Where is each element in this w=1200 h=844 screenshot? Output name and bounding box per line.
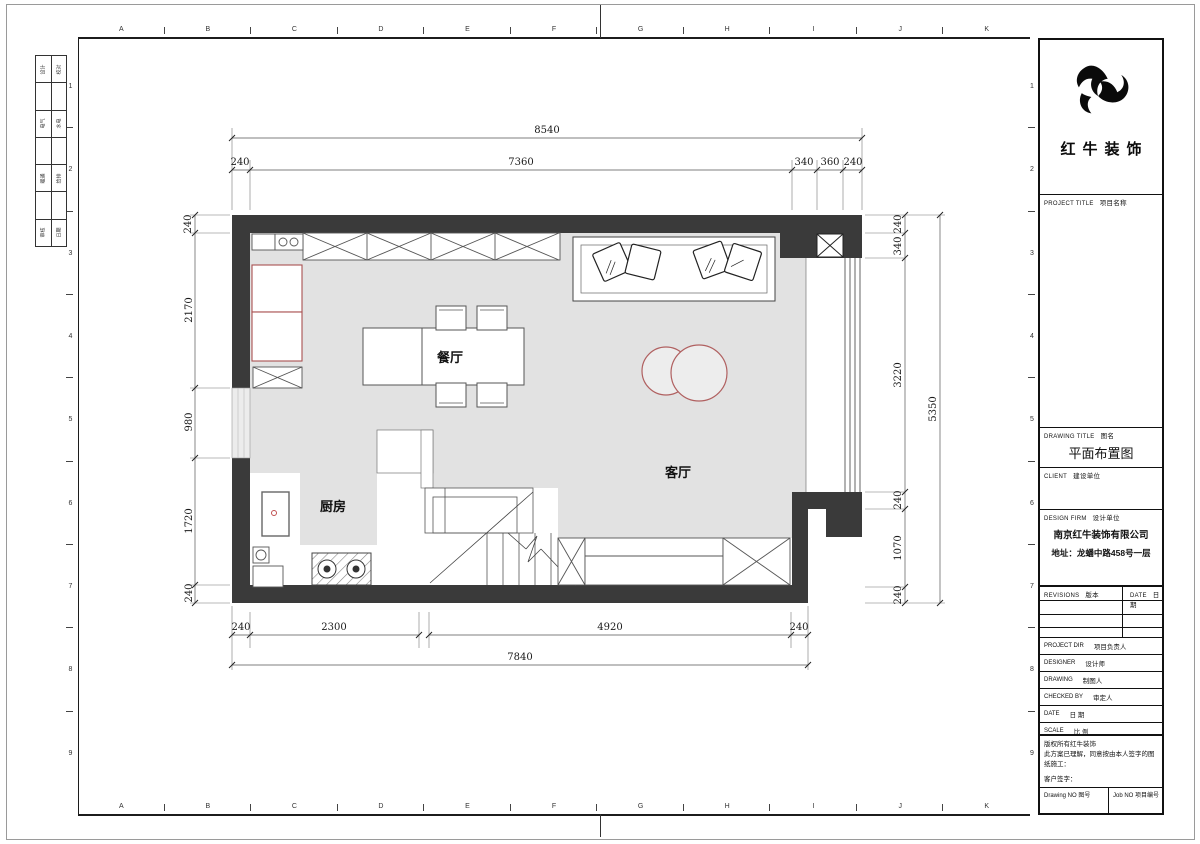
ruler-letter: H [684,24,771,37]
client-signature-label: 客户签字： [1044,775,1159,785]
ruler-number: 9 [1026,712,1038,795]
ruler-letter: E [424,801,511,814]
svg-text:240: 240 [893,585,904,604]
ruler-number: 7 [1026,545,1038,628]
chair-icon [436,306,466,330]
ruler-letter: J [857,801,944,814]
ruler-letter: D [338,24,425,37]
ruler-letter: C [251,801,338,814]
window-left [232,388,250,458]
ruler-number: 6 [64,462,77,545]
chair-icon [477,383,507,407]
svg-text:980: 980 [184,412,195,431]
svg-text:240: 240 [230,157,249,168]
index-cell: 设计 [40,64,47,74]
drawing-title-label: DRAWING TITLE [1044,434,1095,440]
index-row-empty [36,83,66,110]
index-row: 设计 校对 [36,56,66,83]
kitchen-table [262,492,289,536]
index-cell: 日期 [55,228,62,238]
chair-icon [477,306,507,330]
frame-left-line [78,37,79,816]
svg-text:4920: 4920 [597,622,622,633]
ruler-number: 8 [1026,628,1038,711]
copyright-section: 版权所有红牛装饰 此方案已理解，同意按由本人签字的图纸施工： 客户签字： [1040,734,1162,787]
index-row: 电气 水电 [36,111,66,138]
design-firm-section: DESIGN FIRM设计单位 南京红牛装饰有限公司 地址：龙蟠中路458号一层 [1040,509,1162,585]
logo-section: 红牛装饰 [1040,40,1162,194]
appliance-box [252,265,302,312]
svg-text:7360: 7360 [508,157,533,168]
row-designer: DESIGNER设计师 [1040,654,1162,671]
job-no-cell: Job NO 项目编号 [1109,788,1162,813]
svg-text:240: 240 [231,622,250,633]
svg-text:1720: 1720 [184,508,195,533]
row-date: DATE日 期 [1040,705,1162,722]
revisions-section: REVISIONS版本 DATE日期 [1040,585,1162,637]
rednbull-logo-icon [1053,58,1149,136]
stove-icon [312,553,371,585]
svg-text:360: 360 [820,157,839,168]
ruler-letter: F [511,801,598,814]
ruler-number: 8 [64,628,77,711]
sink-icon [256,550,266,560]
ruler-letter: D [338,801,425,814]
ruler-number: 3 [1026,212,1038,295]
ruler-letter: E [424,24,511,37]
break-line-icon [526,536,541,562]
ruler-right-numbers: 123456789 [1026,45,1038,795]
fold-mark-bottom [600,814,601,837]
index-row-empty [36,192,66,219]
appliance-box [252,312,302,361]
index-cell: 水电 [55,119,62,129]
project-title-section: PROJECT TITLE项目名称 [1040,194,1162,427]
svg-text:3220: 3220 [893,362,904,387]
sofa [573,237,775,301]
revisions-date-label: DATE [1130,593,1147,599]
footer-section: Drawing NO 图号 Job NO 项目编号 [1040,787,1162,813]
ruler-number: 7 [64,545,77,628]
pillow-icon [625,244,661,280]
index-cell: 校对 [55,64,62,74]
signature-rows: PROJECT DIR项目负责人 DESIGNER设计师 DRAWING制图人 … [1040,637,1162,739]
svg-text:7840: 7840 [507,652,532,663]
svg-text:240: 240 [184,583,195,602]
ruler-top-letters: ABCDEFGHIJK [78,24,1030,37]
frame-bottom-line [78,814,1030,816]
svg-text:2300: 2300 [321,622,346,633]
ruler-letter: I [770,801,857,814]
room-label-kitchen: 厨房 [320,499,346,514]
client-label: CLIENT [1044,474,1067,480]
ruler-letter: K [943,24,1030,37]
ruler-letter: B [165,801,252,814]
ruler-letter: C [251,24,338,37]
ruler-letter: A [78,801,165,814]
revisions-label: REVISIONS [1044,593,1079,599]
ruler-letter: F [511,24,598,37]
coffee-table-icon [671,345,727,401]
ruler-number: 5 [1026,378,1038,461]
svg-text:1070: 1070 [893,535,904,560]
room-label-living: 客厅 [665,465,691,480]
ruler-number: 6 [1026,462,1038,545]
index-row: 审核 日期 [36,220,66,246]
ruler-letter: G [597,801,684,814]
floor-plan: 餐厅 客厅 厨房 [150,95,960,680]
drawing-no-cell: Drawing NO 图号 [1040,788,1109,813]
ruler-number: 4 [64,295,77,378]
logo-text: 红牛装饰 [1040,138,1162,159]
row-checked-by: CHECKED BY审定人 [1040,688,1162,705]
ruler-letter: K [943,801,1030,814]
project-title-label: PROJECT TITLE [1044,201,1094,207]
row-drawing: DRAWING制图人 [1040,671,1162,688]
ruler-letter: B [165,24,252,37]
ruler-number: 2 [1026,128,1038,211]
company-name: 南京红牛装饰有限公司 [1040,527,1162,541]
room-label-dining: 餐厅 [436,350,463,365]
svg-text:240: 240 [893,490,904,509]
column-box-icon [817,234,843,257]
svg-text:240: 240 [893,214,904,233]
ruler-letter: H [684,801,771,814]
chair-icon [436,383,466,407]
company-address: 地址：龙蟠中路458号一层 [1040,547,1162,559]
ruler-number: 9 [64,712,77,795]
svg-text:8540: 8540 [534,125,559,136]
design-firm-label: DESIGN FIRM [1044,516,1087,522]
drawing-title-section: DRAWING TITLE图名 平面布置图 [1040,427,1162,467]
svg-text:340: 340 [794,157,813,168]
ruler-bottom-letters: ABCDEFGHIJK [78,801,1030,814]
wardrobe-cabinets [303,233,560,260]
ruler-letter: G [597,24,684,37]
client-section: CLIENT建设单位 [1040,467,1162,509]
drawing-sheet: ABCDEFGHIJK ABCDEFGHIJK 123456789 123456… [0,0,1200,844]
copyright-line1: 版权所有红牛装饰 [1044,740,1159,750]
svg-text:5350: 5350 [928,396,939,421]
ruler-letter: J [857,24,944,37]
frame-top-line [78,37,1030,39]
drawing-title-value: 平面布置图 [1040,443,1162,462]
svg-text:2170: 2170 [184,297,195,322]
ruler-letter: I [770,24,857,37]
revision-row-empty [1040,601,1162,615]
ruler-letter: A [78,24,165,37]
index-cell: 暖通 [40,173,47,183]
svg-text:240: 240 [183,214,194,233]
title-block: 红牛装饰 PROJECT TITLE项目名称 DRAWING TITLE图名 平… [1038,38,1164,815]
window-right [806,258,860,492]
index-cell: 电气 [40,119,47,129]
tv-cabinets [558,538,790,585]
sheet-index-table: 设计 校对 电气 水电 暖通 给排 审核 日期 [35,55,67,247]
index-row-empty [36,138,66,165]
index-cell: 审核 [40,228,47,238]
svg-text:340: 340 [893,236,904,255]
svg-text:240: 240 [789,622,808,633]
ruler-number: 1 [1026,45,1038,128]
revision-row-empty [1040,615,1162,628]
ruler-number: 4 [1026,295,1038,378]
svg-text:240: 240 [843,157,862,168]
index-cell: 给排 [55,173,62,183]
index-row: 暖通 给排 [36,165,66,192]
row-project-dir: PROJECT DIR项目负责人 [1040,637,1162,654]
ruler-number: 5 [64,378,77,461]
copyright-line2: 此方案已理解，同意按由本人签字的图纸施工： [1044,750,1159,770]
